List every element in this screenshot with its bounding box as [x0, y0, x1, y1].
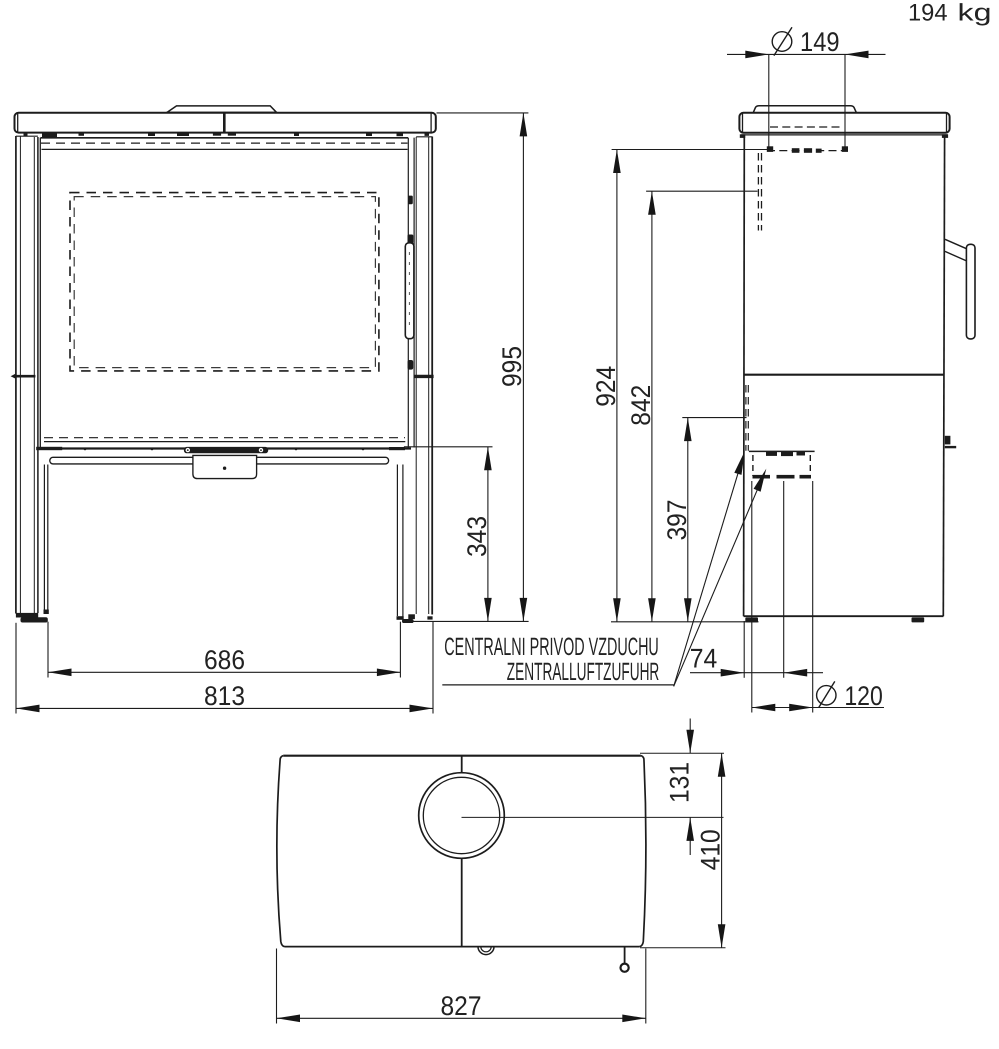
svg-text:149: 149 — [800, 27, 840, 57]
svg-text:410: 410 — [696, 829, 726, 870]
svg-text:995: 995 — [497, 346, 527, 387]
svg-text:842: 842 — [626, 385, 656, 426]
svg-text:kg: kg — [958, 0, 992, 26]
svg-text:827: 827 — [441, 991, 482, 1021]
svg-text:397: 397 — [662, 500, 692, 541]
svg-text:74: 74 — [690, 644, 718, 674]
svg-text:813: 813 — [204, 681, 245, 711]
svg-text:924: 924 — [591, 366, 621, 407]
svg-text:ZENTRALLUFTZUFUHR: ZENTRALLUFTZUFUHR — [507, 658, 660, 686]
svg-text:131: 131 — [664, 762, 694, 803]
svg-text:343: 343 — [462, 516, 492, 557]
svg-text:194: 194 — [908, 0, 948, 26]
svg-text:686: 686 — [204, 645, 245, 675]
svg-text:120: 120 — [844, 681, 883, 711]
